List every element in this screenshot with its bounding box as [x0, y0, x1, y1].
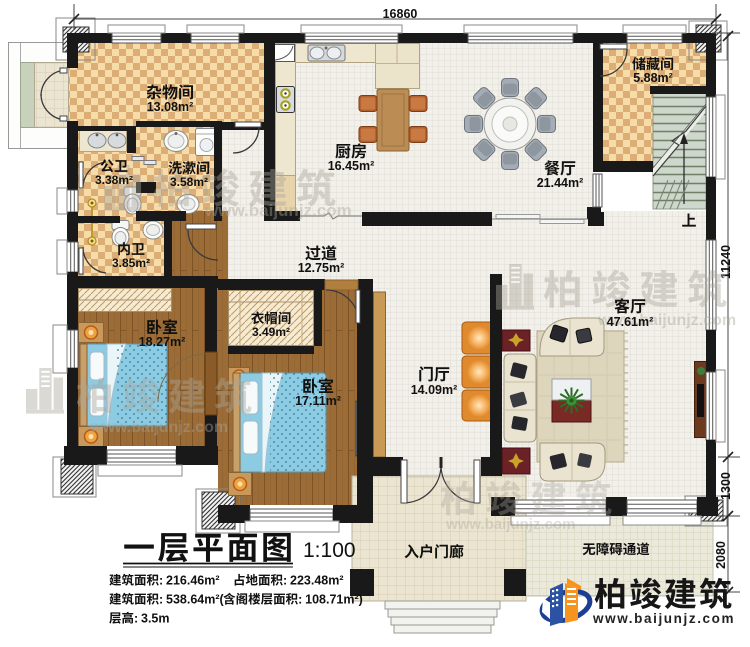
- svg-text:108.71m²): 108.71m²): [305, 593, 363, 607]
- svg-text:www.baijunjz.com: www.baijunjz.com: [204, 201, 352, 220]
- svg-text:216.46m²: 216.46m²: [166, 574, 220, 588]
- svg-text:12.75m²: 12.75m²: [298, 261, 345, 275]
- svg-text::: :: [283, 574, 287, 588]
- svg-text:1300: 1300: [719, 472, 733, 500]
- svg-text:14.09m²: 14.09m²: [411, 383, 458, 397]
- svg-text:16860: 16860: [383, 7, 418, 21]
- svg-text:3.49m²: 3.49m²: [252, 325, 290, 339]
- svg-text:3.85m²: 3.85m²: [112, 256, 150, 270]
- svg-text:47.61m²: 47.61m²: [607, 315, 654, 329]
- svg-text:3.38m²: 3.38m²: [95, 173, 133, 187]
- svg-text:538.64m²(: 538.64m²(: [166, 593, 225, 607]
- svg-text:18.27m²: 18.27m²: [139, 335, 186, 349]
- svg-text:www.baijunjz.com: www.baijunjz.com: [592, 611, 735, 626]
- svg-text:www.baijunjz.com: www.baijunjz.com: [445, 516, 575, 533]
- svg-text::: :: [159, 574, 163, 588]
- svg-text:3.5m: 3.5m: [141, 612, 170, 626]
- svg-text::: :: [298, 593, 302, 607]
- svg-text:17.11m²: 17.11m²: [295, 394, 341, 408]
- svg-text:223.48m²: 223.48m²: [290, 574, 344, 588]
- svg-text:1:100: 1:100: [303, 539, 356, 562]
- svg-text:13.08m²: 13.08m²: [147, 100, 194, 114]
- svg-text::: :: [134, 612, 138, 626]
- svg-text:www.baijunjz.com: www.baijunjz.com: [89, 419, 228, 436]
- svg-text:2080: 2080: [714, 541, 728, 569]
- svg-text:21.44m²: 21.44m²: [537, 176, 584, 190]
- svg-text:5.88m²: 5.88m²: [633, 71, 673, 85]
- svg-text::: :: [159, 593, 163, 607]
- svg-text:16.45m²: 16.45m²: [328, 159, 375, 173]
- svg-text:3.58m²: 3.58m²: [170, 175, 208, 189]
